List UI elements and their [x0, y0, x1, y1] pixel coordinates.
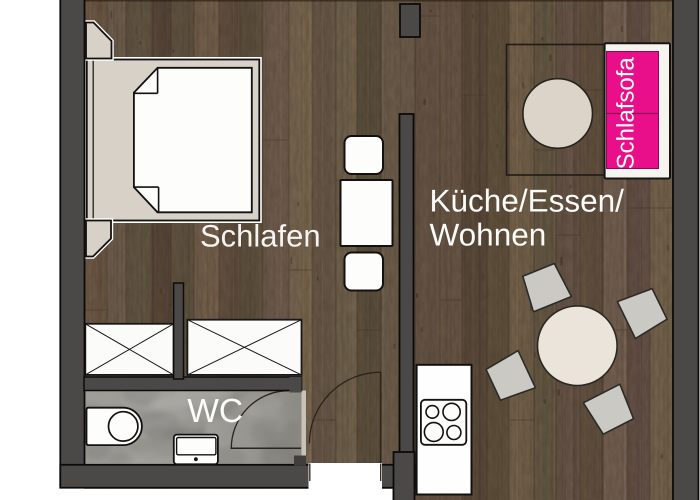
- svg-text:Schlafsofa: Schlafsofa: [612, 57, 639, 170]
- svg-text:Küche/Essen/: Küche/Essen/: [429, 183, 624, 219]
- svg-text:Wohnen: Wohnen: [429, 217, 546, 253]
- svg-text:WC: WC: [187, 393, 243, 430]
- svg-text:Schlafen: Schlafen: [200, 219, 321, 254]
